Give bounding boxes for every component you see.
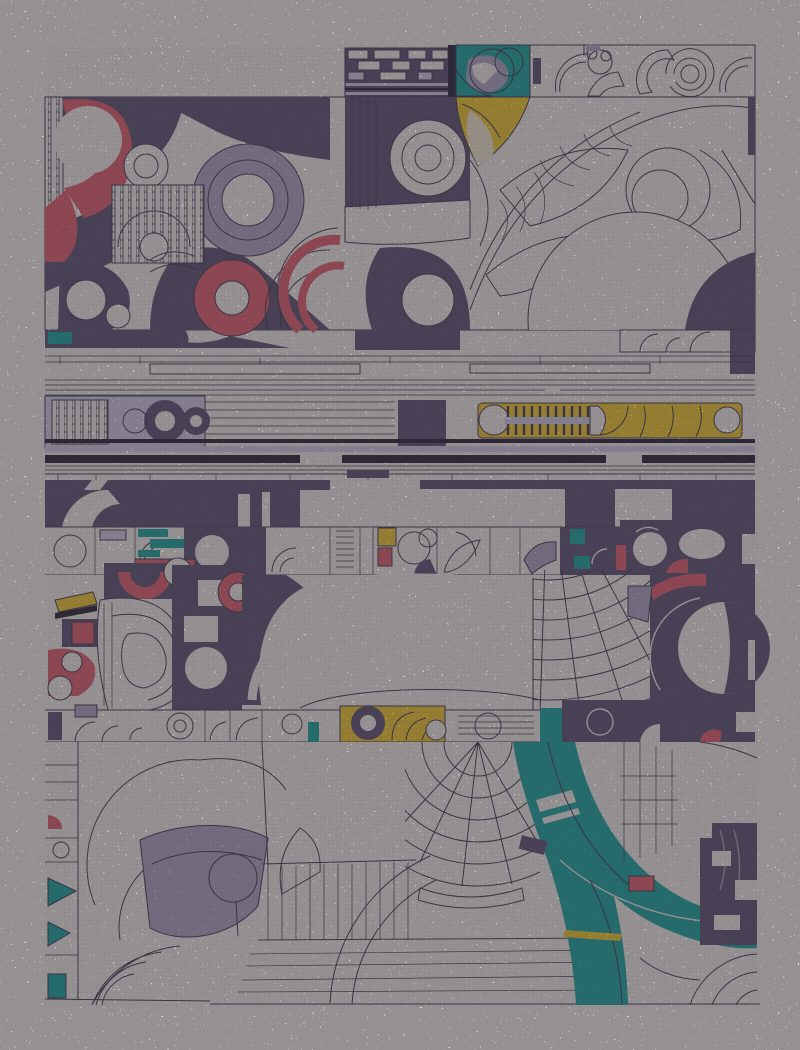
paper-speckle-overlay bbox=[0, 0, 800, 1050]
generative-artwork bbox=[0, 0, 800, 1050]
artwork-page bbox=[0, 0, 800, 1050]
